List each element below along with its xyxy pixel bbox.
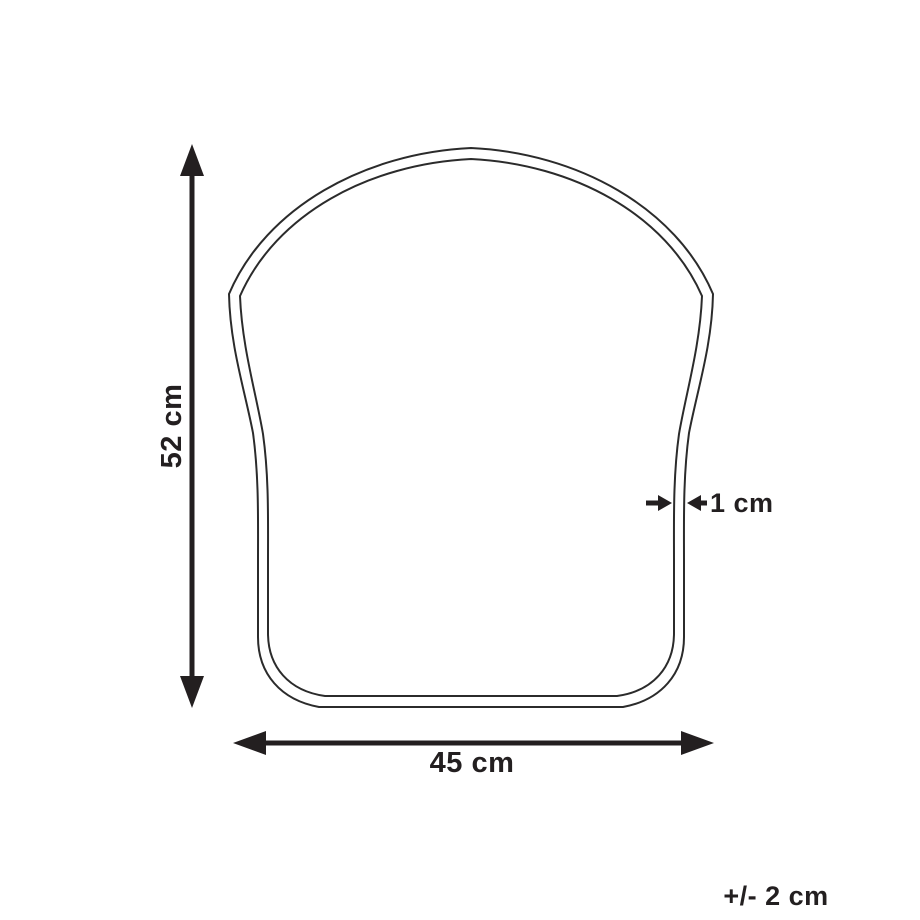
cushion-inner-outline bbox=[240, 159, 702, 696]
arrow-down-icon bbox=[180, 676, 204, 708]
height-dimension-label: 52 cm bbox=[157, 366, 187, 486]
arrow-left-icon bbox=[233, 731, 266, 755]
cushion-outer-outline bbox=[229, 148, 713, 707]
dimension-diagram: 52 cm 45 cm 1 cm +/- 2 cm bbox=[0, 0, 920, 920]
thickness-dimension-arrows bbox=[646, 495, 707, 511]
tolerance-label: +/- 2 cm bbox=[691, 881, 861, 911]
width-dimension-label: 45 cm bbox=[412, 748, 532, 778]
thickness-dimension-label: 1 cm bbox=[710, 488, 774, 518]
diagram-drawing bbox=[0, 0, 920, 920]
arrow-right-icon bbox=[681, 731, 714, 755]
arrow-up-icon bbox=[180, 144, 204, 176]
arrow-right-small-icon bbox=[658, 495, 672, 511]
